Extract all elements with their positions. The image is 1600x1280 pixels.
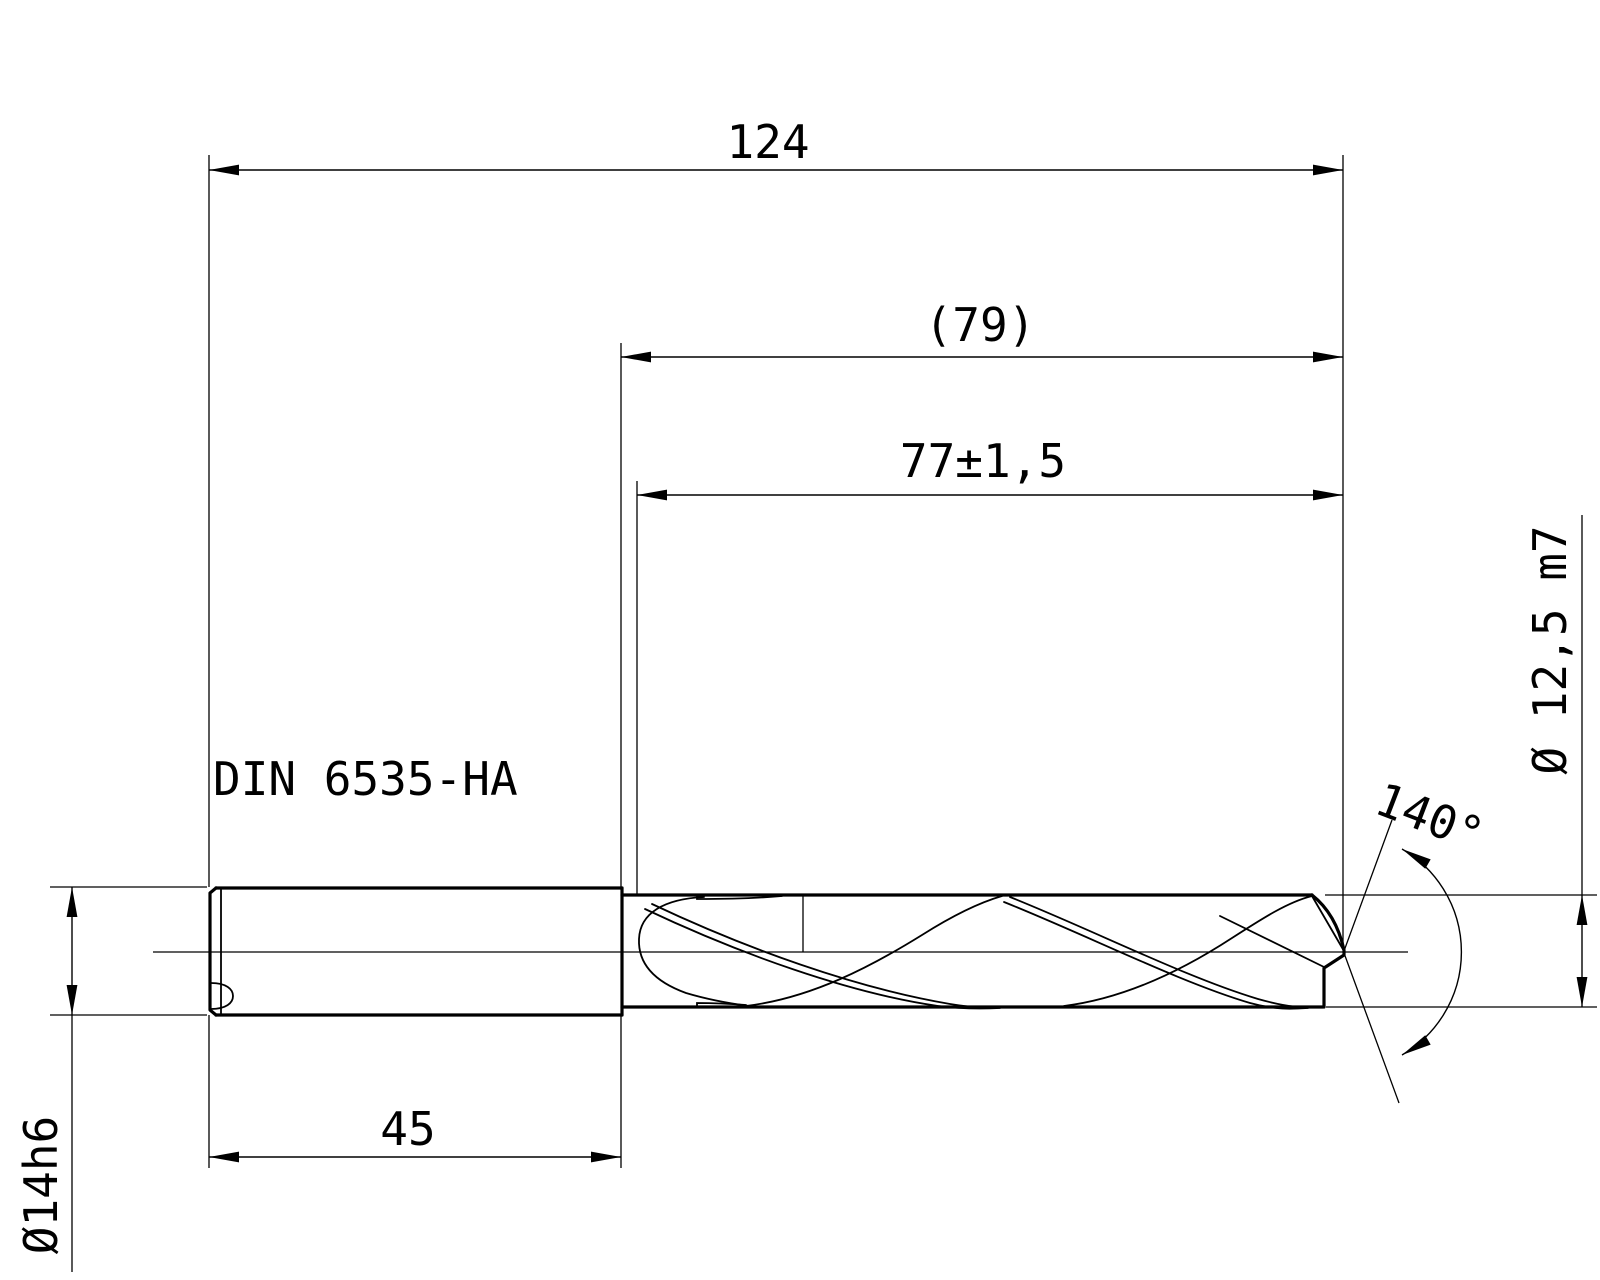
angle-leg-lower [1344,953,1399,1103]
angle-leg-upper [1344,820,1392,951]
dimension-value: 45 [380,1102,435,1156]
dimension-value: 124 [726,115,809,169]
drill-technical-drawing: 124 (79) 77±1,5 45 Ø14h6 Ø 12,5 m7 140° … [0,0,1600,1280]
dimension-point-angle: 140° [1344,772,1491,1103]
flute-edge-helix-2 [1064,896,1312,1006]
angle-arc [1402,849,1461,1055]
shank-end-notch [211,983,233,1009]
dimension-value: Ø 12,5 m7 [1523,525,1577,774]
shank-standard-label: DIN 6535-HA [213,752,518,806]
dimension-value: 140° [1368,772,1491,862]
dimension-usable-length: 77±1,5 [637,434,1343,495]
chisel-edge-line [1312,896,1344,951]
margin-helix-1b [645,909,1000,1009]
dimension-shank-diameter: Ø14h6 [14,887,72,1272]
dimension-flute-length-ref: (79) [621,298,1343,357]
point-top-flank [1312,895,1344,1007]
dimension-cutting-diameter: Ø 12,5 m7 [1523,515,1582,1007]
dimension-value: 77±1,5 [900,434,1066,488]
dimension-value: Ø14h6 [14,1116,68,1254]
cutting-lip-line [1220,916,1324,967]
technical-drawing-canvas: 124 (79) 77±1,5 45 Ø14h6 Ø 12,5 m7 140° … [0,0,1600,1280]
flute-edge-helix-1 [746,896,1002,1006]
dimension-overall-length: 124 [209,115,1343,170]
dimension-shank-length: 45 [209,1102,621,1157]
margin-helix-1a [652,904,1012,1008]
dimension-value: (79) [925,298,1036,352]
